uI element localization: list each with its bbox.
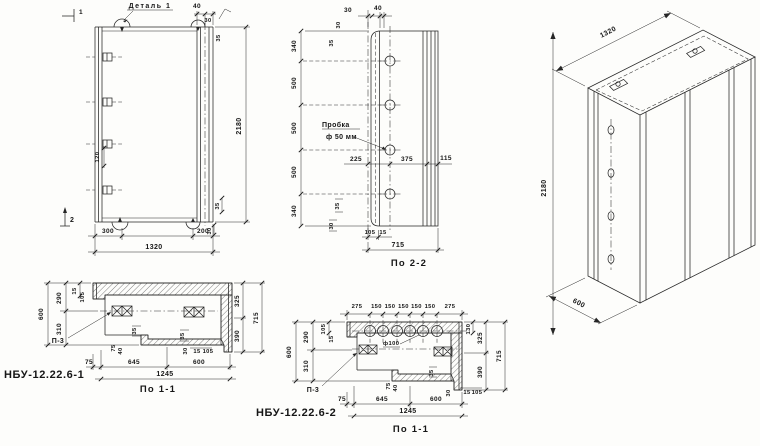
dim-s11a-s35b: 35 [180,332,186,340]
dim-s22-left-500c: 500 [291,166,298,178]
section-marker-1-label: 1 [79,9,83,16]
dim-s22-top-40: 40 [374,5,382,12]
dim-iso-length: 1320 [599,26,617,40]
dim-s11a-left-105: 105 [80,291,86,302]
dim-s11a-left-600: 600 [38,308,45,320]
anchor-label-a: П-3 [52,338,64,345]
section-2-2-view: 30 40 30 35 340 500 500 500 340 Пробка ф… [291,5,452,269]
dim-s11b-right-130: 130 [466,324,472,335]
dim-s11a-left-310: 310 [56,323,63,335]
dim-s11b-top-150e: 150 [425,304,436,310]
lifting-loop-icons [112,19,205,230]
dim-s22-bl-30: 30 [329,222,335,229]
dim-s11b-bot-645: 645 [376,396,388,403]
section-1-1-a-title: НБУ-12.22.6-1 [4,369,84,381]
dim-front-br-35: 35 [215,202,221,210]
dim-s22-side-30: 30 [336,21,342,28]
dim-s11a-right-390: 390 [234,330,241,342]
dim-s22-mid-225: 225 [350,156,362,163]
dim-s11a-bot-1245: 1245 [156,371,173,378]
dim-s22-left-500b: 500 [291,122,298,134]
anchor-plate-icon [359,345,377,354]
dim-s11b-left-290: 290 [303,331,310,343]
dim-s11b-s15: 15 [463,390,471,396]
dim-s11a-s35a: 35 [132,327,138,335]
dim-s22-b-105: 105 [365,230,376,236]
dim-s11a-s15: 15 [193,349,201,355]
dim-s11a-s105: 105 [203,349,214,355]
dim-s11b-s105: 105 [472,390,483,396]
dim-front-top-40: 40 [193,3,201,10]
section-1-1-a-view: П-3 290 310 600 15 105 325 390 715 35 35… [4,281,265,395]
dim-s11b-right-390: 390 [477,366,484,378]
dim-s11a-bot-600: 600 [193,359,205,366]
dim-front-bot-300: 300 [102,228,114,235]
plug-label-line1: Пробка [322,121,350,129]
dim-s22-left-340a: 340 [291,40,298,52]
dim-s11a-right-325: 325 [234,295,241,307]
dim-s11a-right-715: 715 [253,312,260,324]
drawing-sheet: Деталь 1 1 40 30 35 2180 120 2 300 200 1… [0,0,760,446]
dim-s11b-top-150a: 150 [371,304,382,310]
hole-label: ф100 [383,340,399,347]
dim-s11b-top-150c: 150 [398,304,409,310]
dim-s11b-top-150d: 150 [411,304,422,310]
anchor-label-b: П-3 [307,387,319,394]
dim-s11b-top-275b: 275 [445,304,456,310]
dim-s22-left-500a: 500 [291,77,298,89]
dim-s11b-right-325: 325 [477,332,484,344]
dim-s11b-bot-600: 600 [430,396,442,403]
dim-s11b-left-600: 600 [286,346,293,358]
section-2-2-caption: По 2-2 [391,258,427,269]
dim-front-bot-1320: 1320 [145,244,162,251]
dim-s11a-left-15: 15 [72,287,78,295]
section-marker-2-label: 2 [70,217,74,224]
dim-iso-height: 2180 [541,179,548,196]
dim-s11b-bot-1245: 1245 [399,408,416,415]
dim-s11a-s30: 30 [183,347,189,354]
plug-label-line2: ф 50 мм [326,134,357,141]
dim-s11b-s75: 75 [386,382,392,390]
section-1-1-b-caption: По 1-1 [393,424,429,435]
section-1-1-a-caption: По 1-1 [140,384,176,395]
dim-s22-width-715: 715 [392,242,405,249]
dim-s11b-s30: 30 [446,389,452,396]
blueprint-canvas: Деталь 1 1 40 30 35 2180 120 2 300 200 1… [0,0,760,446]
dim-s11b-left-310: 310 [303,360,310,372]
anchor-plate-icon [434,347,452,356]
dim-front-top-35: 35 [216,34,222,42]
front-elevation-view: Деталь 1 1 40 30 35 2180 120 2 300 200 1… [60,3,250,256]
dim-s22-top-30: 30 [344,7,352,14]
section-1-1-b-view: 275 150 150 150 150 150 275 ф100 П-3 290… [256,304,508,435]
dim-s22-bl-35: 35 [335,202,341,210]
dim-s22-side-35: 35 [329,39,335,47]
dim-front-br-30: 30 [207,227,213,234]
dim-s22-left-340b: 340 [291,205,298,217]
dim-s11b-s40: 40 [393,384,399,391]
dim-s11b-left-105: 105 [321,323,327,334]
dim-s11b-top-275a: 275 [352,304,363,310]
section-1-1-b-title: НБУ-12.22.6-2 [256,407,336,419]
dim-front-height: 2180 [236,117,243,134]
dim-front-hook-120: 120 [95,152,101,163]
dim-s11a-bot-645: 645 [128,359,140,366]
dim-iso-depth: 600 [571,298,586,310]
dim-s11a-left-290: 290 [56,292,63,304]
dim-s11b-s35: 35 [429,369,435,377]
embed-hook-icons [103,53,112,194]
dim-s22-mid-115: 115 [440,155,452,162]
dim-s22-b-15: 15 [379,230,387,236]
dim-s11b-bot-75: 75 [338,396,346,403]
dim-s11a-bot-75: 75 [85,359,93,366]
anchor-plate-icon [184,307,204,317]
dim-s22-mid-375: 375 [401,156,413,163]
dim-front-top-30: 30 [204,18,211,24]
detail-label: Деталь 1 [129,3,172,10]
dim-s11a-s40: 40 [118,347,124,354]
dim-s11b-right-715: 715 [496,350,503,362]
dim-s11b-left-15: 15 [329,335,335,343]
dim-s11a-s75: 75 [111,344,117,352]
dim-s11b-top-150b: 150 [385,304,396,310]
isometric-view: 1320 2180 600 [541,11,755,335]
